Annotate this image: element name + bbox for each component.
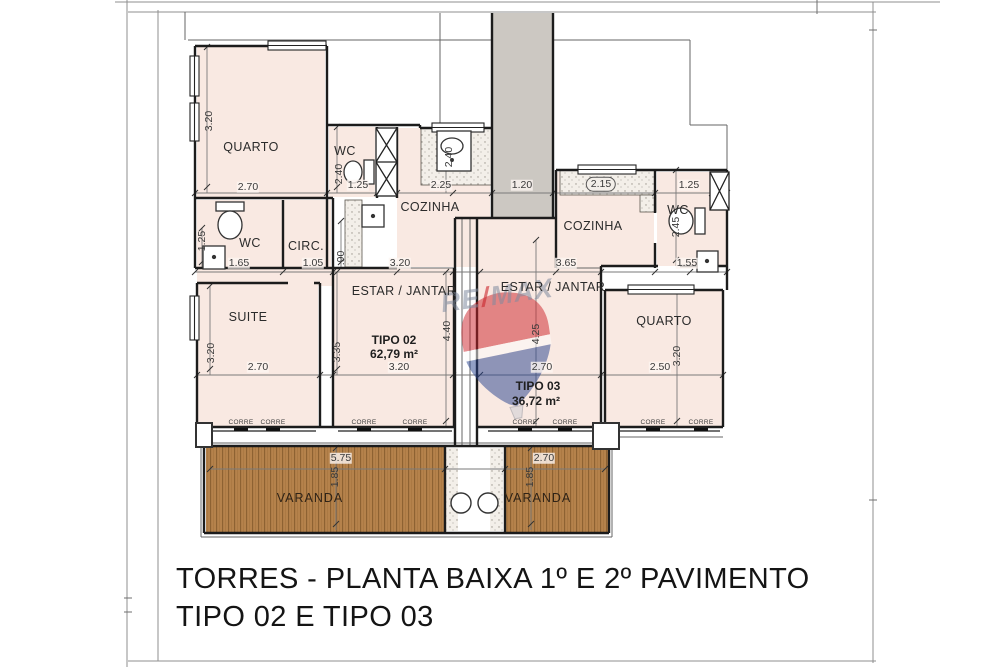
dim-cozinha02-width: 2.25 [430,180,452,191]
dim-estar02-left-height: 3.35 [332,341,343,363]
dim-quarto02-height: 3.20 [204,110,215,132]
sliding-doors [212,428,720,431]
sliding-door-label: CORRE [229,420,254,427]
dim-circ-height: .90 [336,250,347,267]
dim-wc03-top-width: 1.25 [678,180,700,191]
sliding-door-label: CORRE [689,420,714,427]
unit-area-tipo03: 36,72 m² [512,395,560,407]
room-label-wc-tipo03: WC [667,204,689,217]
toilet [216,202,244,239]
sink [362,205,384,227]
dim-counter02-height: 2.40 [444,146,455,168]
dim-suite-height: 3.20 [206,342,217,364]
dim-quarto03-height: 3.20 [672,345,683,367]
sliding-door-label: CORRE [352,420,377,427]
sliding-door-label: CORRE [553,420,578,427]
room-label-varanda-tipo02: VARANDA [277,492,344,505]
room-label-quarto-tipo03: QUARTO [636,315,691,328]
floor-plan-sheet: RE/MAX QUARTO WC COZINHA WC CIRC. SUITE … [0,0,1000,667]
room-label-circ: CIRC. [288,240,324,253]
room-label-suite: SUITE [229,311,268,324]
dim-wc-suite-width: 1.65 [228,258,250,269]
dim-varanda02-height: 1.85 [330,466,341,488]
dim-cozinha03-width: 3.65 [555,258,577,269]
room-label-estar-tipo02: ESTAR / JANTAR [352,285,456,298]
room-label-varanda-tipo03: VARANDA [505,492,572,505]
room-label-estar-tipo03: ESTAR / JANTAR [501,281,605,294]
dim-suite-width: 2.70 [247,362,269,373]
dim-estar02-top-width: 3.20 [389,258,411,269]
dim-estar02-height: 4.40 [442,320,453,342]
unit-label-tipo03: TIPO 03 [516,380,561,392]
room-label-quarto-tipo02: QUARTO [223,141,278,154]
sliding-door-label: CORRE [261,420,286,427]
sink [697,251,718,272]
round-column [451,493,471,513]
square-column [196,423,212,447]
dim-estar02-bottom-width: 3.20 [388,362,410,373]
dim-wc02-height: 2.40 [334,163,345,185]
dim-circ-width: 1.05 [302,258,324,269]
square-column [593,423,619,449]
room-label-wc-suite: WC [239,237,261,250]
dim-corridor-width: 1.20 [511,180,533,191]
dim-wc02-width: 1.25 [347,180,369,191]
dim-counter03-width: 2.15 [586,177,616,192]
sheet-title-line2: TIPO 02 E TIPO 03 [176,601,434,634]
sliding-door-label: CORRE [403,420,428,427]
unit-label-tipo02: TIPO 02 [372,334,417,346]
dim-wc03-height: 2.45 [671,216,682,238]
sliding-door-label: CORRE [513,420,538,427]
sliding-door-label: CORRE [641,420,666,427]
room-label-cozinha-tipo02: COZINHA [400,201,459,214]
sheet-title-line1: TORRES - PLANTA BAIXA 1º E 2º PAVIMENTO [176,563,810,596]
dim-nook-height: 1.25 [197,230,208,252]
dim-quarto02-width: 2.70 [237,182,259,193]
dim-varanda03-width: 2.70 [533,453,555,464]
dim-varanda03-height: 1.85 [525,466,536,488]
dim-estar03-height: 4.25 [531,323,542,345]
dim-quarto03-width: 2.50 [649,362,671,373]
dim-varanda02-width: 5.75 [330,453,352,464]
dim-wc03-width: 1.55 [676,258,698,269]
round-column [478,493,498,513]
dim-estar03-bottom-width: 2.70 [531,362,553,373]
room-label-wc-tipo02: WC [334,145,356,158]
unit-area-tipo02: 62,79 m² [370,348,418,360]
room-label-cozinha-tipo03: COZINHA [563,220,622,233]
